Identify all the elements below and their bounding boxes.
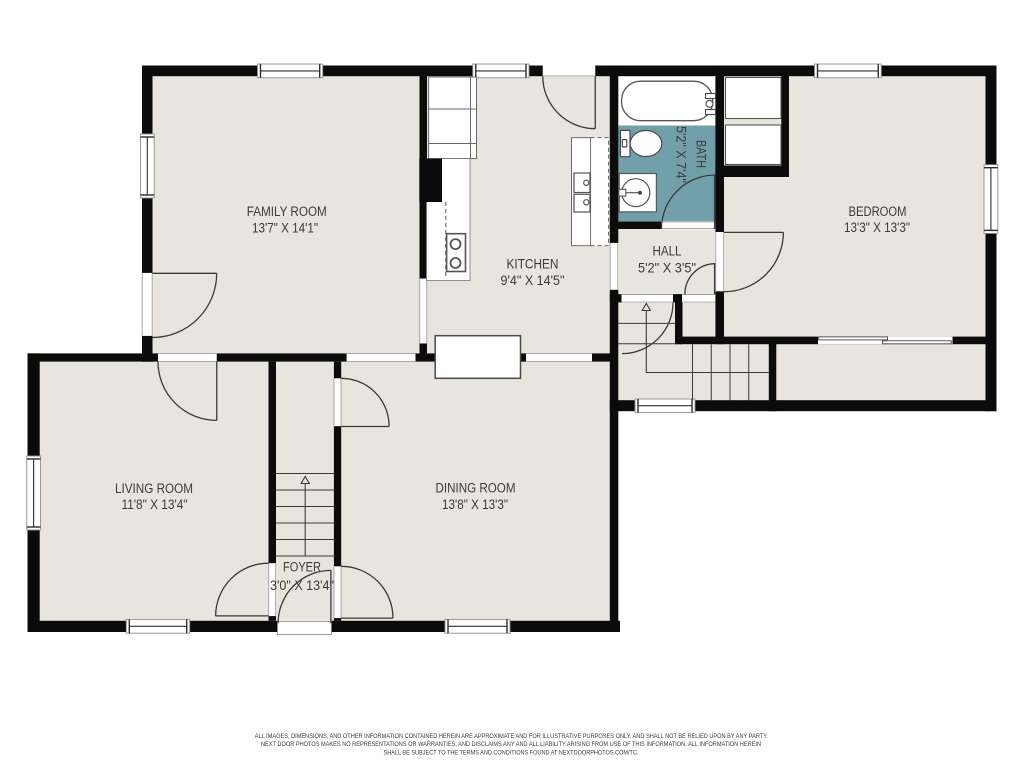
svg-text:13'7" X 14'1": 13'7" X 14'1" — [252, 220, 318, 236]
svg-text:BEDROOM: BEDROOM — [849, 204, 907, 220]
svg-text:FAMILY ROOM: FAMILY ROOM — [247, 204, 327, 220]
svg-text:KITCHEN: KITCHEN — [507, 257, 559, 273]
svg-text:BATH: BATH — [693, 140, 709, 168]
svg-text:ALL IMAGES, DIMENSIONS, AND OT: ALL IMAGES, DIMENSIONS, AND OTHER INFORM… — [255, 733, 768, 740]
svg-text:DINING ROOM: DINING ROOM — [436, 481, 516, 497]
svg-text:13'3" X 13'3": 13'3" X 13'3" — [844, 219, 910, 235]
svg-text:11'8" X 13'4": 11'8" X 13'4" — [122, 496, 188, 512]
svg-text:3'0" X 13'4": 3'0" X 13'4" — [270, 577, 334, 593]
svg-text:9'4" X 14'5": 9'4" X 14'5" — [501, 272, 565, 288]
svg-text:LIVING ROOM: LIVING ROOM — [115, 481, 193, 497]
svg-text:FOYER: FOYER — [283, 560, 321, 576]
svg-text:5'2" X 3'5": 5'2" X 3'5" — [638, 260, 696, 276]
svg-text:NEXT DOOR PHOTOS MAKES NO REPR: NEXT DOOR PHOTOS MAKES NO REPRESENTATION… — [261, 741, 761, 748]
svg-text:13'8" X 13'3": 13'8" X 13'3" — [442, 496, 508, 512]
svg-text:HALL: HALL — [653, 244, 682, 260]
svg-text:5'2" X 7'4": 5'2" X 7'4" — [674, 126, 690, 183]
svg-text:SHALL BE SUBJECT TO THE TERMS: SHALL BE SUBJECT TO THE TERMS AND CONDIT… — [384, 750, 639, 757]
